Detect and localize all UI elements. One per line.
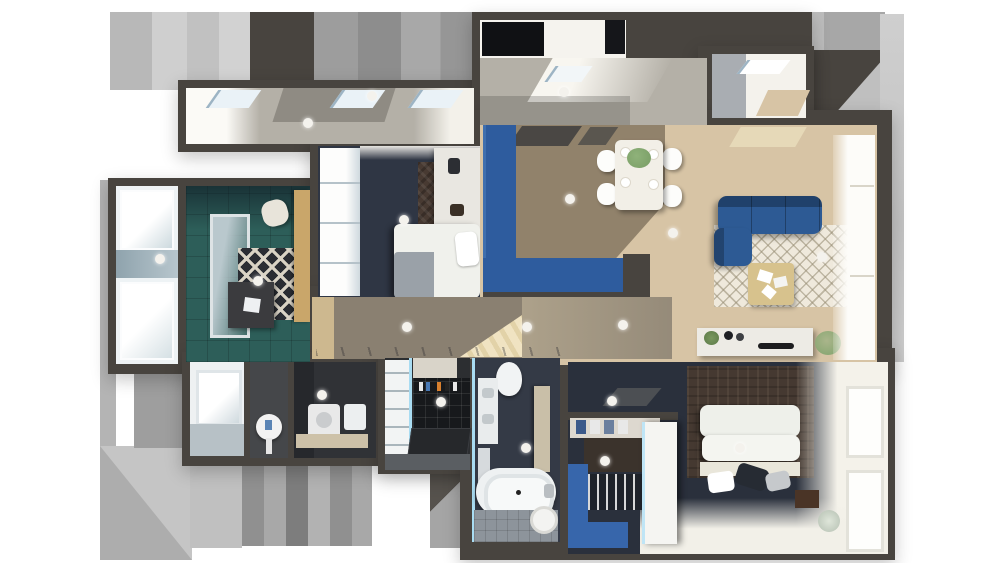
wood-side-table	[294, 190, 310, 322]
washer-door	[316, 412, 332, 428]
bed-blanket	[394, 252, 434, 298]
window-frame-line	[850, 275, 874, 277]
round-vase	[818, 510, 840, 532]
desk-paper	[243, 297, 261, 313]
toiletry-bottle	[419, 382, 423, 391]
ceiling-light	[668, 228, 678, 238]
storage-floor	[190, 424, 244, 456]
room-shower	[385, 358, 470, 470]
sideboard-vase	[736, 333, 744, 341]
plate	[648, 179, 659, 190]
wall-block-top	[250, 12, 314, 90]
room-terrace-mid	[480, 58, 707, 126]
ceiling-light	[436, 397, 446, 407]
ceiling-light	[303, 118, 313, 128]
window-pane	[846, 470, 884, 552]
folded-clothes	[590, 420, 600, 434]
ceiling-light	[367, 91, 377, 101]
tub-faucet	[544, 484, 554, 498]
room-storage	[190, 362, 244, 456]
glass-partition	[316, 347, 572, 356]
toiletry-bottle	[437, 382, 441, 391]
skylight-void	[482, 22, 544, 56]
sideboard-vase	[724, 331, 733, 340]
folded-clothes	[576, 420, 586, 434]
skylight-void	[605, 20, 625, 54]
closet-back-wall	[584, 438, 642, 472]
wardrobe-item	[448, 158, 460, 174]
wood-shelf	[534, 386, 550, 472]
sofa-chaise	[714, 228, 752, 266]
ceiling-light	[521, 443, 531, 453]
room-study	[186, 186, 310, 362]
bed-mattress	[700, 405, 800, 437]
table-plant	[627, 148, 651, 168]
dining-chair	[662, 148, 682, 170]
bed-duvet	[702, 435, 800, 461]
ceiling-light	[817, 252, 827, 262]
shower-floor	[385, 454, 470, 470]
closet-wardrobe	[642, 422, 677, 544]
bed-pillow	[764, 470, 791, 493]
toiletry-bottle	[426, 382, 430, 391]
ceiling-light	[522, 322, 532, 332]
blue-accent-wall-horizontal	[483, 258, 623, 292]
bath-stool	[530, 506, 558, 534]
ceiling-light	[317, 390, 327, 400]
toiletry-bottle	[445, 382, 449, 391]
nightstand	[795, 490, 819, 508]
room-wc	[250, 362, 288, 458]
room-terrace-left	[186, 88, 474, 144]
room-master-bedroom	[568, 362, 888, 554]
roof-stripes-bottom	[242, 456, 372, 546]
folded-clothes	[604, 420, 614, 434]
ceiling-light	[155, 254, 165, 264]
roof-strip-top-left	[110, 12, 250, 90]
white-appliance	[344, 404, 366, 430]
ceiling-light	[559, 87, 569, 97]
ceiling-light	[399, 215, 409, 225]
folded-clothes	[618, 420, 628, 434]
closet-shelves	[588, 474, 642, 510]
sink	[482, 414, 494, 424]
plate	[620, 177, 631, 188]
wardrobe-item	[450, 204, 464, 216]
bed-pillow	[707, 470, 736, 493]
skylight-icon	[737, 60, 791, 74]
ceiling-light	[253, 276, 263, 286]
ceiling-light	[402, 322, 412, 332]
sink-fitting	[265, 420, 272, 430]
room-bathroom	[472, 358, 560, 542]
toiletry-bottle	[453, 382, 457, 391]
window-frame-line	[850, 185, 874, 187]
roof-strip-top-mid	[314, 12, 472, 90]
ceiling-beam	[729, 127, 807, 147]
bed-pillow	[454, 231, 479, 267]
dining-chair	[597, 183, 617, 205]
window-pane	[120, 190, 174, 250]
floorplan-scene	[0, 0, 1000, 563]
ceiling-light	[565, 194, 575, 204]
window-pane	[846, 386, 884, 458]
closet-blue-floor-horizontal	[568, 522, 628, 548]
ceiling-light	[735, 443, 745, 453]
window-sill	[116, 250, 178, 278]
tile-shadow	[480, 96, 630, 126]
wood-floor-patch	[756, 90, 810, 116]
towel-shelves	[385, 360, 411, 464]
room-balcony-top-right	[712, 54, 806, 118]
tub-drain	[516, 490, 521, 495]
balcony-tiles	[712, 54, 746, 118]
toilet	[496, 362, 522, 396]
sink	[482, 388, 494, 398]
ceiling-light	[607, 396, 617, 406]
room-laundry	[294, 362, 376, 458]
sideboard-tray	[758, 343, 794, 349]
sideboard-plant	[704, 331, 719, 345]
dining-chair	[597, 150, 617, 172]
window-strip	[320, 148, 360, 296]
laundry-counter	[296, 434, 368, 448]
window-pane	[196, 370, 242, 426]
window-pane	[120, 282, 174, 360]
marble-counter	[413, 358, 457, 378]
room-bay-window	[116, 186, 178, 364]
ceiling-light	[600, 456, 610, 466]
sink-stand	[266, 438, 272, 454]
window-light-column	[833, 135, 875, 360]
roof-strip-bottom	[190, 456, 242, 548]
ceiling-light	[618, 320, 628, 330]
dining-chair	[662, 185, 682, 207]
